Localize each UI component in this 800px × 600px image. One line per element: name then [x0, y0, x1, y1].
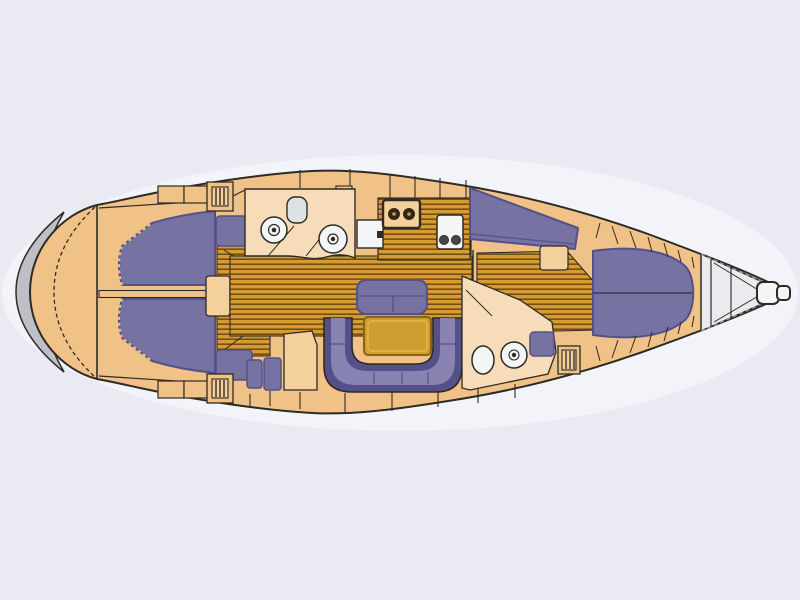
bow-fitting-icon	[757, 282, 790, 304]
boat-floor-plan-diagram	[0, 0, 800, 600]
salon-center-bench	[357, 280, 427, 314]
washbasin-icon	[501, 342, 527, 368]
stern-locker	[158, 381, 184, 398]
aft-head	[245, 189, 355, 259]
washbasin-icon	[287, 197, 307, 223]
stove-icon	[383, 200, 420, 228]
stern-locker	[184, 186, 209, 203]
deck-hatch-port-aft	[207, 182, 233, 211]
salon-table	[364, 317, 431, 355]
nav-seat	[264, 358, 281, 390]
deck-hatch-forward	[558, 346, 580, 374]
stern-locker	[158, 186, 184, 203]
stern-locker	[184, 381, 209, 398]
shower-icon	[319, 225, 347, 253]
yacht-floor-plan	[0, 0, 800, 600]
forward-cabin-step	[540, 246, 568, 270]
chart-table	[284, 331, 317, 390]
aft-cabin-partition	[99, 291, 207, 298]
nav-seat	[247, 360, 262, 388]
toilet-icon	[261, 217, 287, 243]
galley-sink-icon	[437, 215, 463, 249]
forward-head-seat	[530, 332, 554, 356]
forward-island-berth	[593, 249, 693, 338]
deck-hatch-starboard-aft	[207, 374, 233, 403]
toilet-icon	[472, 346, 494, 374]
fridge-latch	[377, 231, 383, 238]
